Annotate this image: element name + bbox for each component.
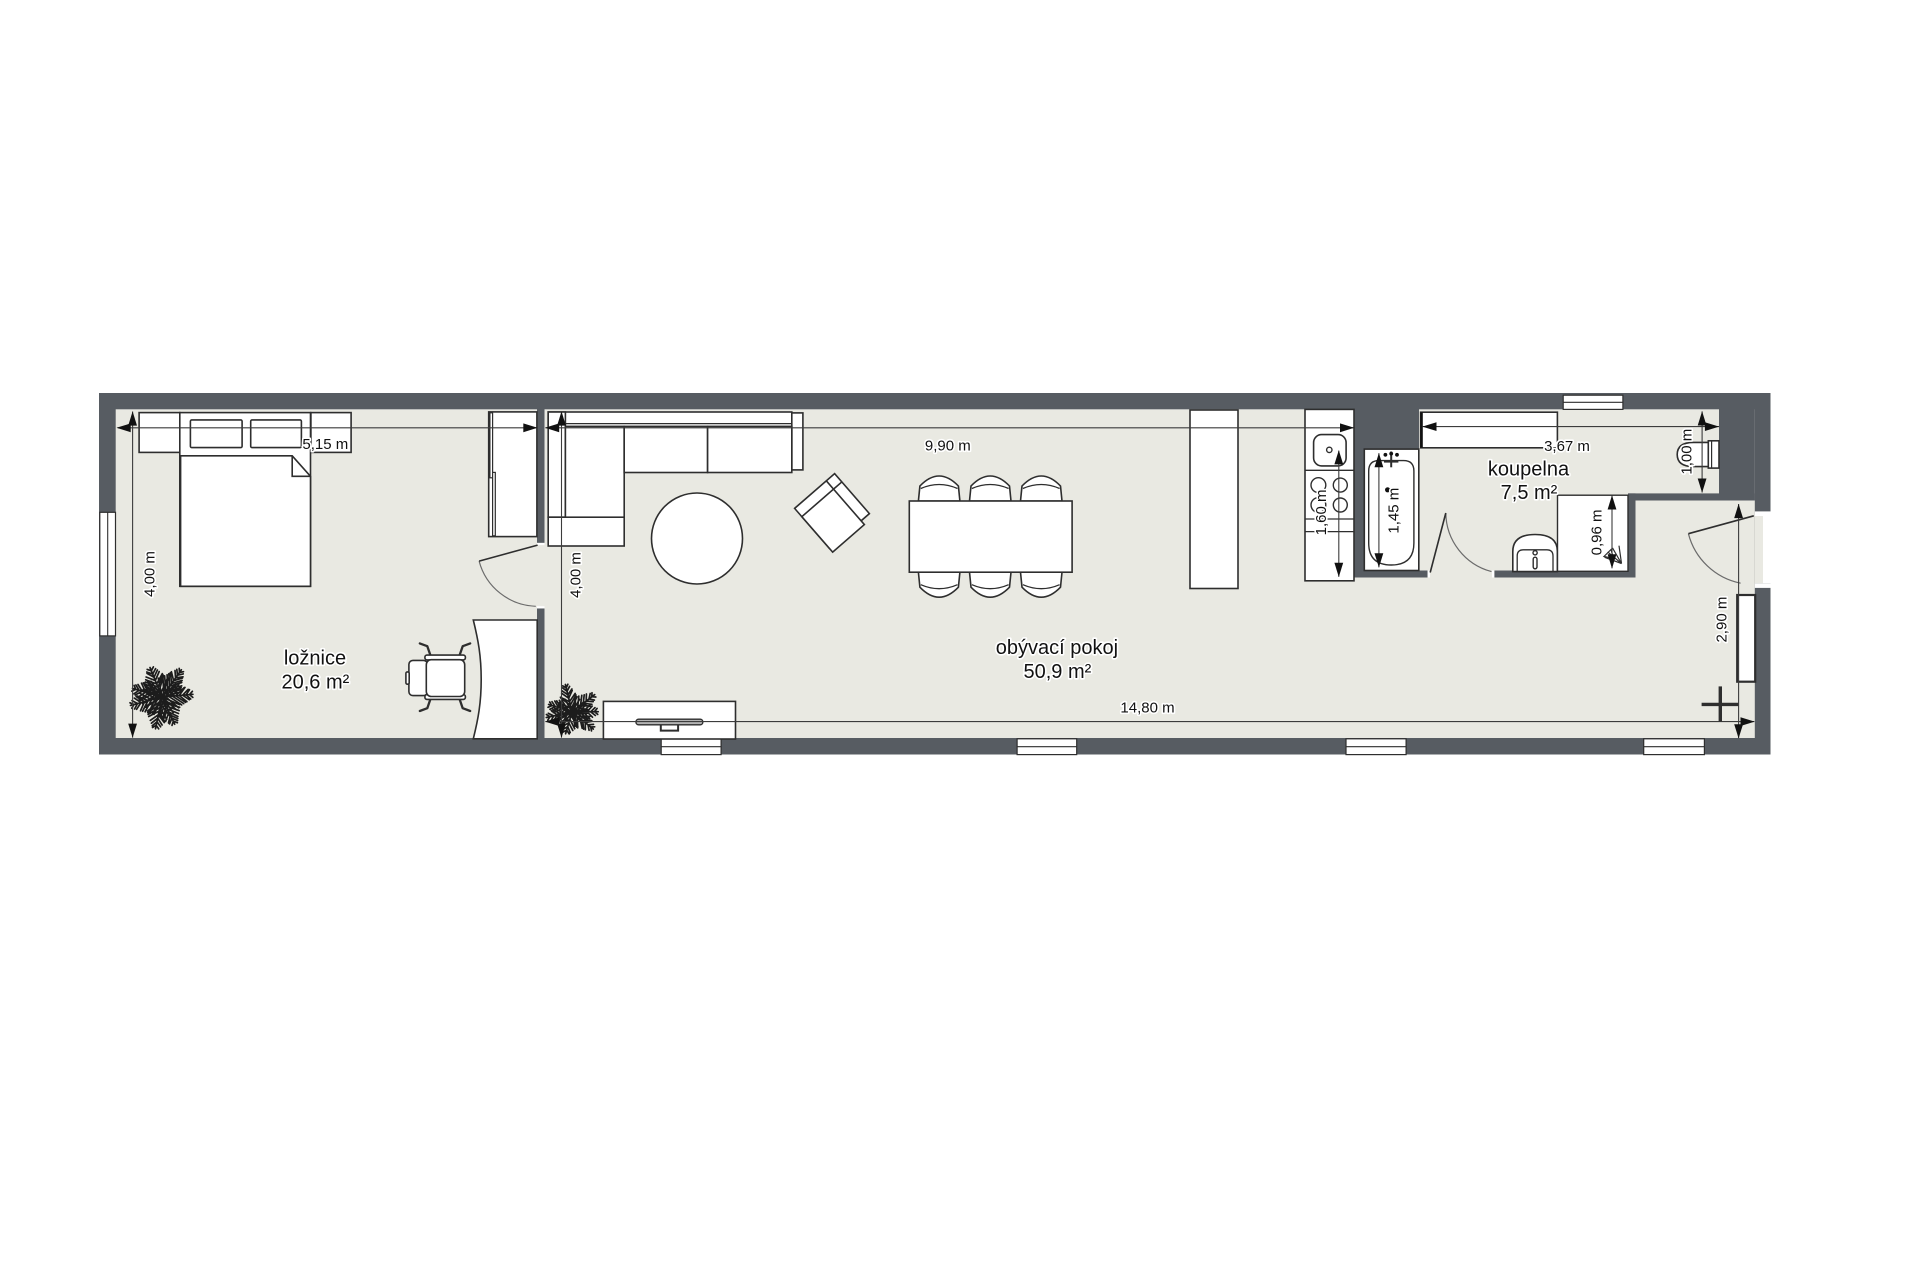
svg-text:7,5 m²: 7,5 m² — [1501, 482, 1558, 504]
svg-text:4,00 m: 4,00 m — [142, 551, 159, 597]
svg-text:4,00 m: 4,00 m — [568, 552, 585, 598]
svg-text:5,15 m: 5,15 m — [302, 436, 348, 453]
svg-text:50,9 m²: 50,9 m² — [1023, 661, 1091, 683]
svg-text:1,00 m: 1,00 m — [1678, 429, 1695, 475]
svg-text:1,60 m: 1,60 m — [1313, 489, 1330, 535]
svg-text:ložnice: ložnice — [284, 648, 346, 670]
svg-text:0,96 m: 0,96 m — [1588, 509, 1605, 555]
svg-text:9,90 m: 9,90 m — [925, 438, 971, 455]
svg-text:20,6 m²: 20,6 m² — [281, 672, 349, 694]
svg-text:obývací pokoj: obývací pokoj — [996, 637, 1118, 659]
svg-text:2,90 m: 2,90 m — [1714, 597, 1731, 643]
svg-text:14,80 m: 14,80 m — [1120, 700, 1174, 717]
svg-text:koupelna: koupelna — [1488, 459, 1570, 481]
svg-text:3,67 m: 3,67 m — [1544, 438, 1590, 455]
svg-text:1,45 m: 1,45 m — [1385, 488, 1402, 534]
